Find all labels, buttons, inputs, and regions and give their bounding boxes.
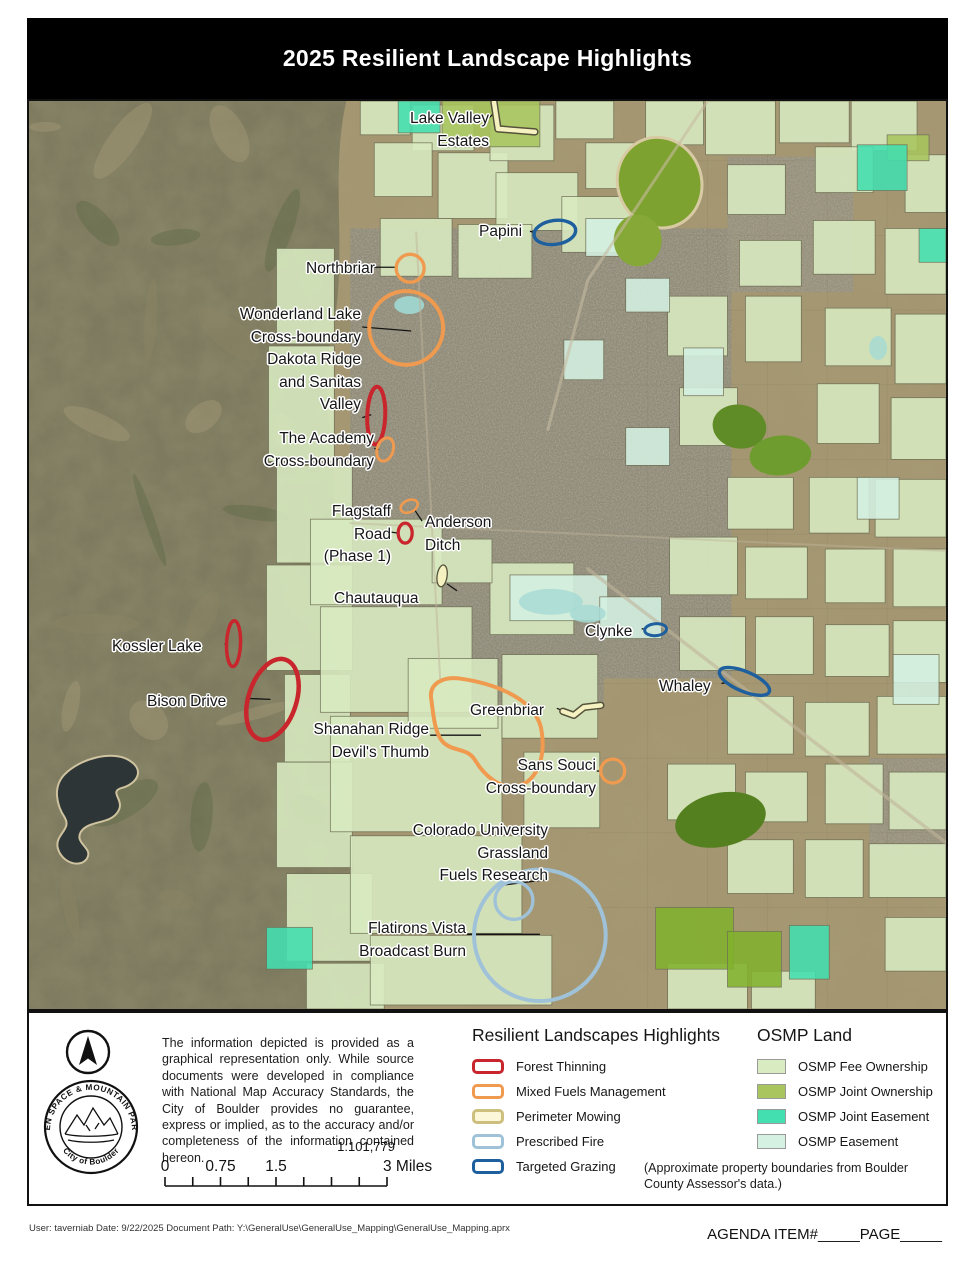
legend-item: OSMP Easement bbox=[757, 1133, 947, 1150]
legend-swatch-targeted-grazing bbox=[472, 1159, 504, 1174]
legend-item-label: Targeted Grazing bbox=[516, 1159, 616, 1174]
legend-box: OPEN SPACE & MOUNTAIN PARKS City of Boul… bbox=[27, 1011, 948, 1206]
footer-agenda: AGENDA ITEM#_____PAGE_____ bbox=[707, 1226, 942, 1243]
legend-item: Prescribed Fire bbox=[472, 1133, 752, 1150]
legend-highlights-title: Resilient Landscapes Highlights bbox=[472, 1025, 752, 1046]
legend-item: Forest Thinning bbox=[472, 1058, 752, 1075]
scale-tick-label: 3 Miles bbox=[383, 1158, 432, 1175]
scale-tick-label: 0.75 bbox=[205, 1158, 235, 1175]
legend-item-label: Forest Thinning bbox=[516, 1059, 606, 1074]
north-arrow-icon bbox=[65, 1029, 111, 1075]
title-bar: 2025 Resilient Landscape Highlights bbox=[27, 18, 948, 99]
legend-swatch-prescribed-fire bbox=[472, 1134, 504, 1149]
legend-swatch-osmp-easement bbox=[757, 1134, 786, 1149]
legend-item-label: Mixed Fuels Management bbox=[516, 1084, 666, 1099]
legend-item: OSMP Joint Easement bbox=[757, 1108, 947, 1125]
legend-item: Mixed Fuels Management bbox=[472, 1083, 752, 1100]
legend-osmp-column: OSMP Land OSMP Fee OwnershipOSMP Joint O… bbox=[757, 1025, 947, 1158]
legend-item: Perimeter Mowing bbox=[472, 1108, 752, 1125]
legend-swatch-osmp-fee-ownership bbox=[757, 1059, 786, 1074]
legend-item-label: OSMP Fee Ownership bbox=[798, 1059, 928, 1074]
legend-note: (Approximate property boundaries from Bo… bbox=[644, 1160, 946, 1192]
scale-ratio: 1:101,779 bbox=[307, 1139, 395, 1154]
scale-tick-label: 0 bbox=[161, 1158, 170, 1175]
legend-swatch-perimeter-mowing bbox=[472, 1109, 504, 1124]
legend-item: OSMP Fee Ownership bbox=[757, 1058, 947, 1075]
legend-item-label: OSMP Joint Easement bbox=[798, 1109, 929, 1124]
legend-swatch-mixed-fuels-management bbox=[472, 1084, 504, 1099]
map-document-page: 2025 Resilient Landscape Highlights bbox=[0, 0, 977, 1264]
legend-item-label: OSMP Easement bbox=[798, 1134, 898, 1149]
page-title: 2025 Resilient Landscape Highlights bbox=[283, 45, 692, 72]
footer-user-info: User: taverniab Date: 9/22/2025 Document… bbox=[29, 1223, 510, 1234]
map-area: Lake ValleyEstatesPapiniNorthbriarWonder… bbox=[27, 99, 948, 1011]
legend-item-label: Perimeter Mowing bbox=[516, 1109, 621, 1124]
scale-tick-label: 1.5 bbox=[265, 1158, 287, 1175]
legend-osmp-title: OSMP Land bbox=[757, 1025, 947, 1046]
osmp-logo: OPEN SPACE & MOUNTAIN PARKS City of Boul… bbox=[41, 1077, 141, 1177]
legend-item-label: OSMP Joint Ownership bbox=[798, 1084, 933, 1099]
legend-swatch-osmp-joint-ownership bbox=[757, 1084, 786, 1099]
legend-swatch-osmp-joint-easement bbox=[757, 1109, 786, 1124]
satellite-basemap bbox=[29, 101, 946, 1009]
legend-swatch-forest-thinning bbox=[472, 1059, 504, 1074]
legend-item-label: Prescribed Fire bbox=[516, 1134, 604, 1149]
legend-item: OSMP Joint Ownership bbox=[757, 1083, 947, 1100]
scale-bar: 00.751.53 Miles bbox=[159, 1153, 469, 1197]
